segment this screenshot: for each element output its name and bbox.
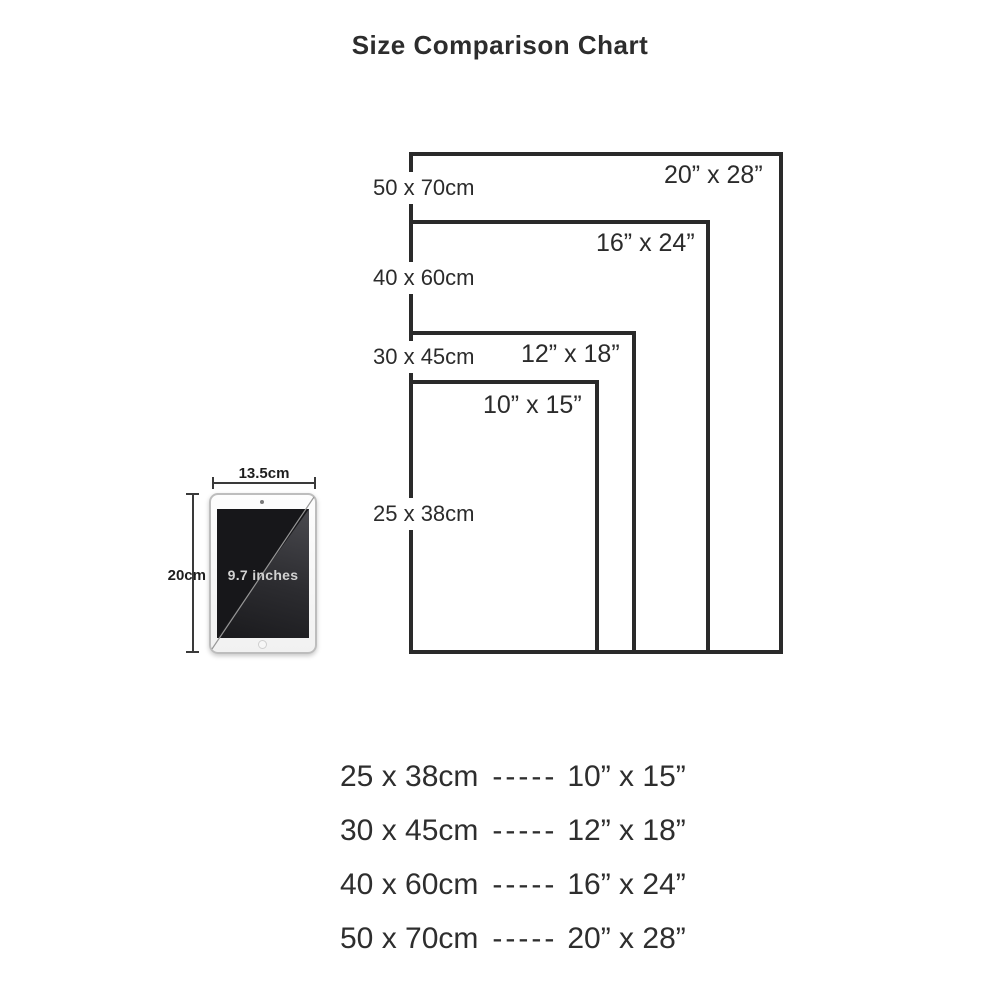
legend-separator: ----- — [492, 760, 557, 793]
legend-cm-50x70: 50 x 70cm — [340, 922, 478, 955]
legend-row-25x38: 25 x 38cm-----10” x 15” — [340, 760, 686, 794]
legend-cm-30x45: 30 x 45cm — [340, 814, 478, 847]
size-legend: 25 x 38cm-----10” x 15” 30 x 45cm-----12… — [0, 0, 1000, 1000]
legend-row-40x60: 40 x 60cm-----16” x 24” — [340, 868, 686, 902]
size-comparison-page: Size Comparison Chart 50 x 70cm 40 x 60c… — [0, 0, 1000, 1000]
legend-inch-20x28: 20” x 28” — [567, 922, 685, 955]
legend-inch-16x24: 16” x 24” — [567, 868, 685, 901]
legend-inch-12x18: 12” x 18” — [567, 814, 685, 847]
legend-row-30x45: 30 x 45cm-----12” x 18” — [340, 814, 686, 848]
legend-separator: ----- — [492, 868, 557, 901]
legend-cm-40x60: 40 x 60cm — [340, 868, 478, 901]
legend-separator: ----- — [492, 922, 557, 955]
legend-cm-25x38: 25 x 38cm — [340, 760, 478, 793]
legend-row-50x70: 50 x 70cm-----20” x 28” — [340, 922, 686, 956]
legend-separator: ----- — [492, 814, 557, 847]
legend-inch-10x15: 10” x 15” — [567, 760, 685, 793]
